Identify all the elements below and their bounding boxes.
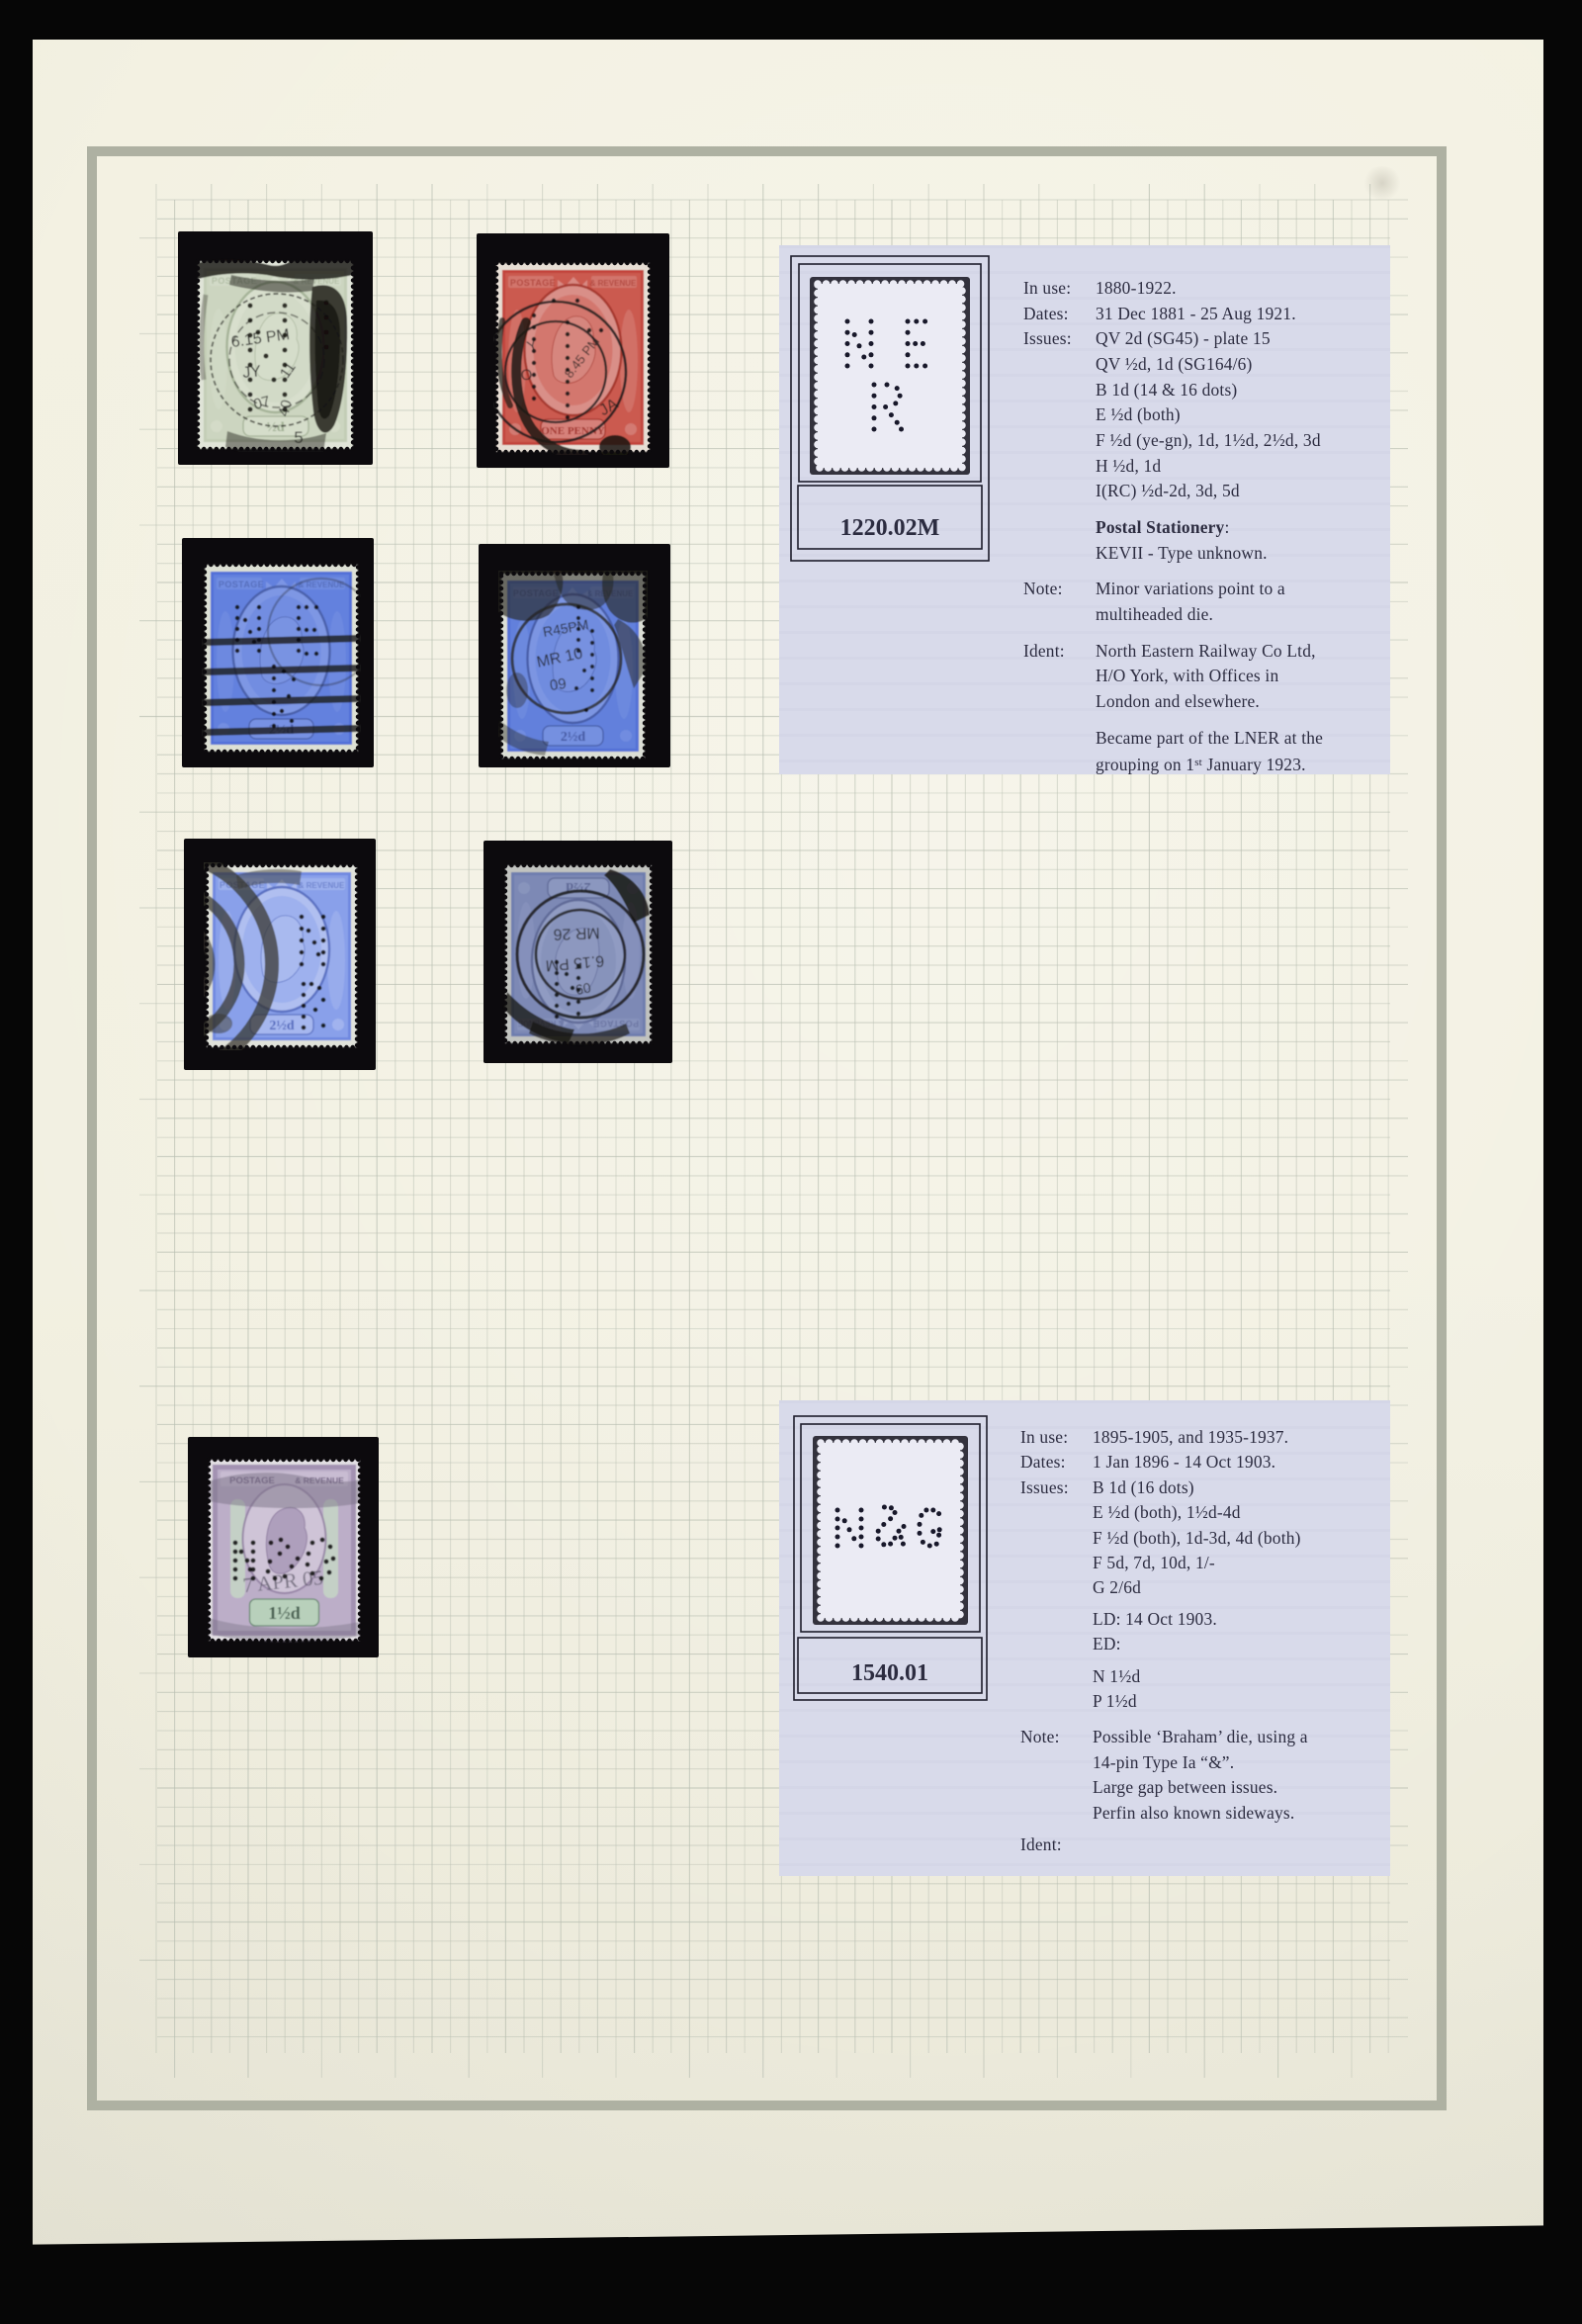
svg-text:& REVENUE: & REVENUE [590,279,637,288]
svg-text:1½d: 1½d [268,1603,301,1623]
svg-text:2½d: 2½d [561,730,586,745]
svg-text:POSTAGE: POSTAGE [510,278,556,288]
svg-text:POSTAGE: POSTAGE [219,580,264,589]
svg-text:O: O [520,367,533,385]
svg-text:MR 26: MR 26 [553,924,600,942]
svg-text:& REVENUE: & REVENUE [299,881,345,890]
svg-text:09: 09 [549,675,568,694]
svg-text:½d: ½d [266,420,285,435]
svg-text:2½d: 2½d [269,1019,295,1033]
